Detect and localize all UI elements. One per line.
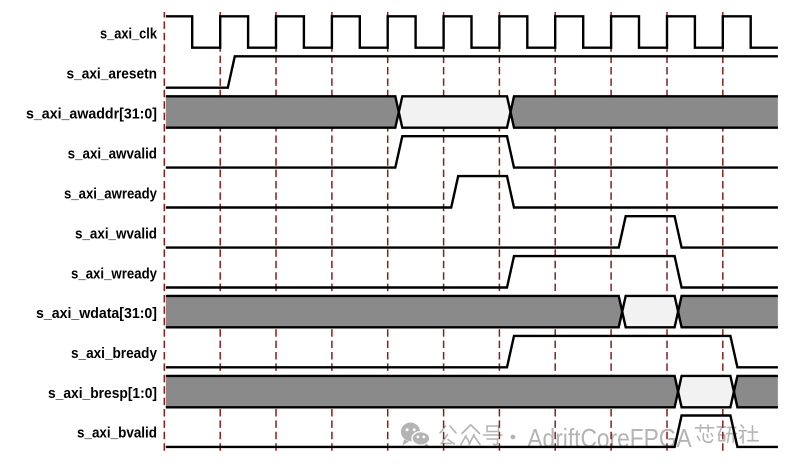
svg-text:s_axi_bvalid: s_axi_bvalid (77, 425, 157, 442)
svg-text:s_axi_wready: s_axi_wready (71, 265, 158, 282)
svg-text:s_axi_wvalid: s_axi_wvalid (75, 225, 157, 242)
svg-text:s_axi_awready: s_axi_awready (64, 185, 158, 202)
svg-text:s_axi_wdata[31:0]: s_axi_wdata[31:0] (36, 305, 157, 322)
svg-text:s_axi_aresetn: s_axi_aresetn (67, 66, 158, 83)
svg-text:s_axi_awvalid: s_axi_awvalid (68, 145, 157, 162)
svg-text:s_axi_bready: s_axi_bready (71, 345, 158, 362)
svg-text:s_axi_awaddr[31:0]: s_axi_awaddr[31:0] (26, 106, 157, 123)
svg-text:s_axi_clk: s_axi_clk (100, 26, 158, 43)
svg-text:s_axi_bresp[1:0]: s_axi_bresp[1:0] (48, 385, 157, 402)
